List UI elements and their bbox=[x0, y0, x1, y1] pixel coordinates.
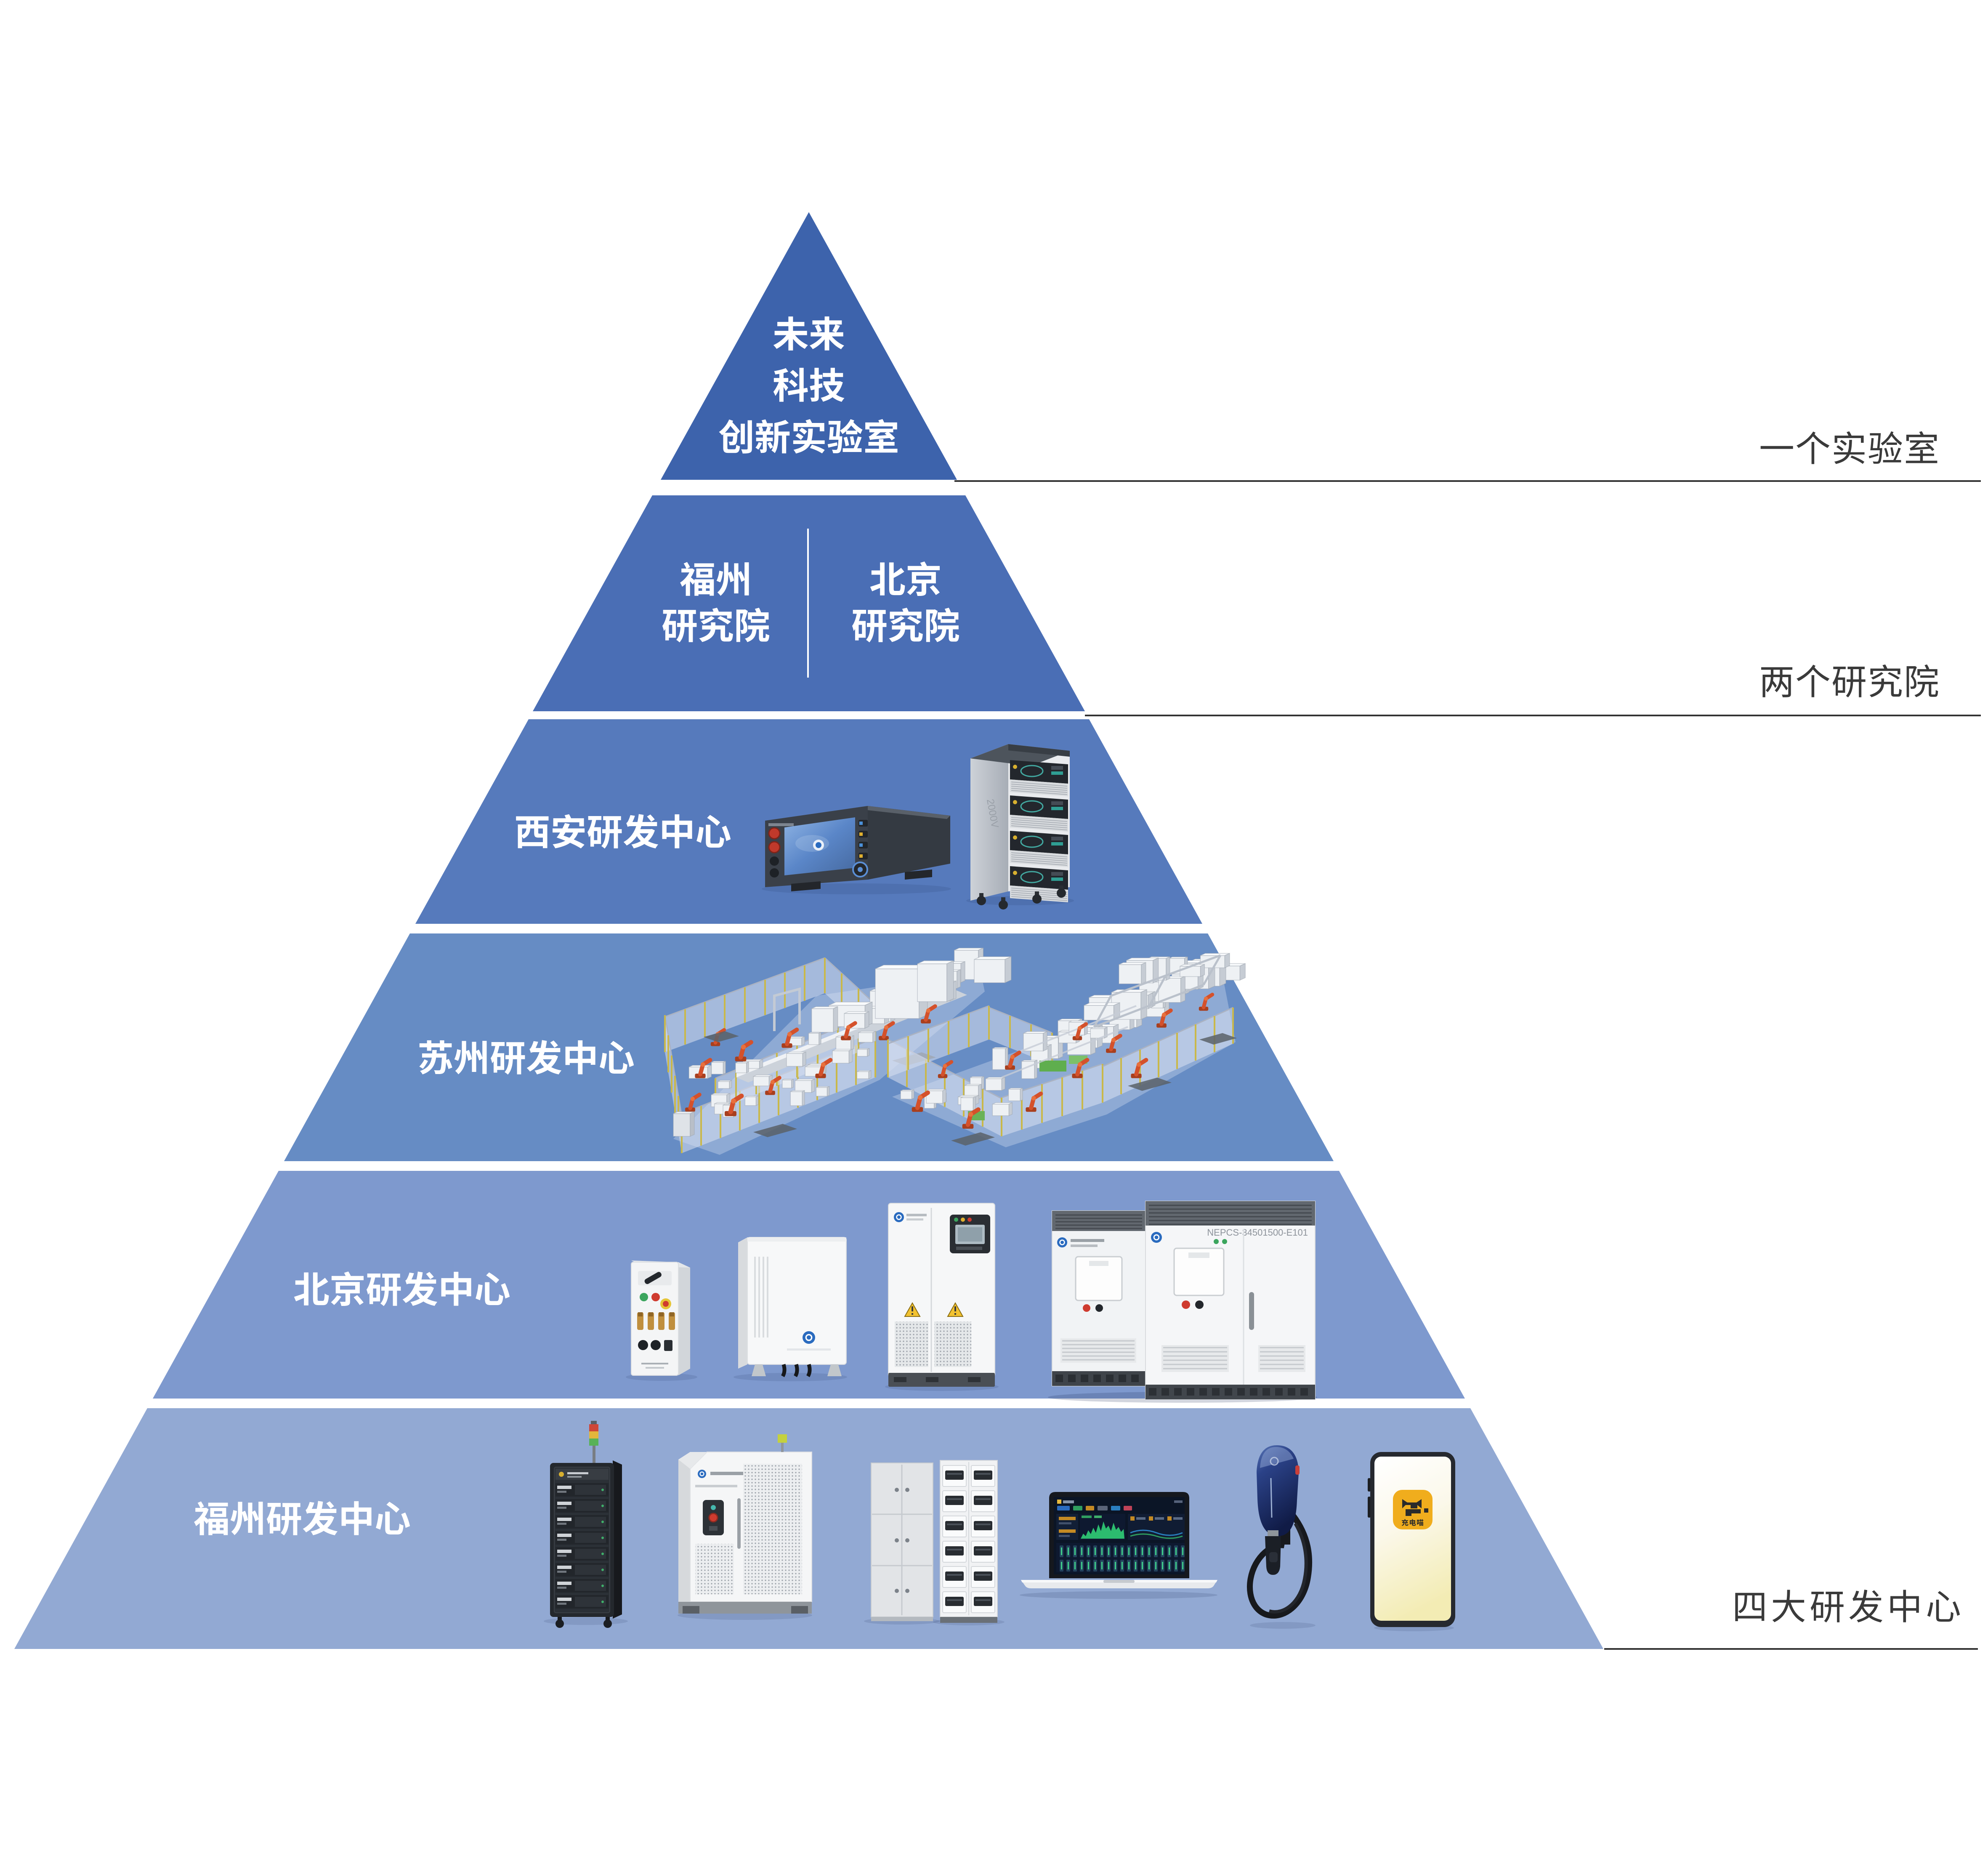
svg-text:NEPCS-34501500-E101: NEPCS-34501500-E101 bbox=[1207, 1227, 1308, 1238]
